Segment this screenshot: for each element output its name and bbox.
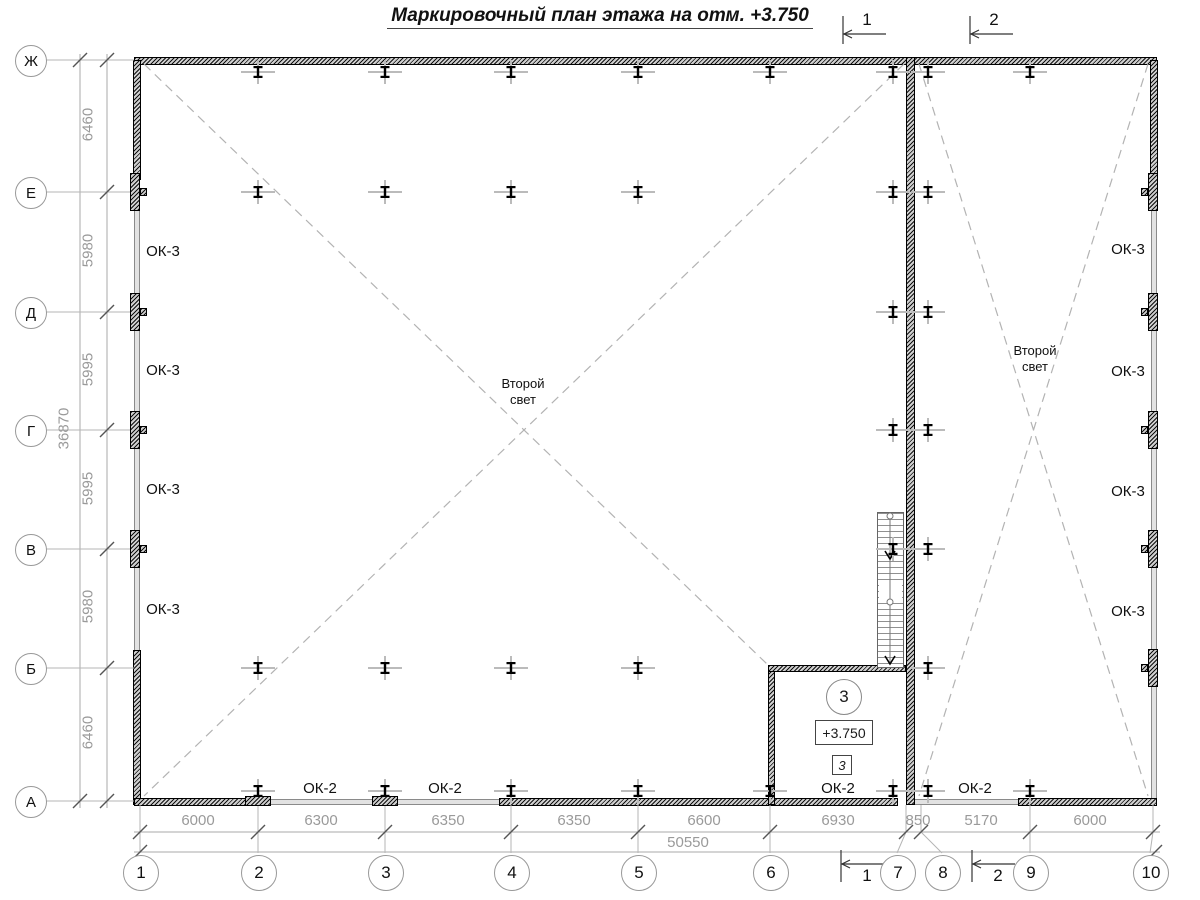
window-label-9: ОК-2: [410, 780, 480, 797]
axis-bubble-col-7: 7: [880, 855, 916, 891]
window-label-10: ОК-2: [803, 780, 873, 797]
section-mark-top-2-label: 2: [982, 10, 1006, 30]
wall-pad-left-tab-430: [140, 426, 147, 434]
room-number-bubble: 3: [826, 679, 862, 715]
wall-pad-left-192: [130, 173, 140, 211]
wall-pad-right-549: [1148, 530, 1158, 568]
axis-bubble-col-9: 9: [1013, 855, 1049, 891]
axis-bubble-col-8: 8: [925, 855, 961, 891]
wall-pad-right-312: [1148, 293, 1158, 331]
wall-pad-right-tab-549: [1141, 545, 1148, 553]
section-mark-top-1-label: 1: [855, 10, 879, 30]
wall-pad-left-312: [130, 293, 140, 331]
wall-pad-right-tab-430: [1141, 426, 1148, 434]
axis-bubble-col-4: 4: [494, 855, 530, 891]
wall-pad-right-668: [1148, 649, 1158, 687]
section-mark-bottom-2-label: 2: [986, 866, 1010, 886]
axis-bubble-col-5: 5: [621, 855, 657, 891]
wall-pad-left-tab-192: [140, 188, 147, 196]
wall-pad-left-tab-312: [140, 308, 147, 316]
wall-pad-left-430: [130, 411, 140, 449]
dim-left-bay-0: 6460: [80, 85, 97, 165]
generated-labels: ЖЕДГВБА123456789106460598059955995598064…: [0, 0, 1200, 900]
dim-bottom-bay-4: 6600: [664, 812, 744, 829]
window-label-7: ОК-3: [1093, 603, 1163, 620]
axis-bubble-row-В: В: [15, 534, 47, 566]
dim-left-bay-4: 5980: [80, 567, 97, 647]
wall-pad-right-tab-668: [1141, 664, 1148, 672]
wall-pad-bottom-385: [372, 796, 398, 806]
axis-bubble-row-Ж: Ж: [15, 45, 47, 77]
window-label-2: ОК-3: [128, 481, 198, 498]
elevation-mark: +3.750: [815, 720, 873, 745]
window-label-0: ОК-3: [128, 243, 198, 260]
dim-left-bay-5: 6460: [80, 693, 97, 773]
window-label-6: ОК-3: [1093, 483, 1163, 500]
axis-bubble-row-Е: Е: [15, 177, 47, 209]
section-mark-bottom-1-label: 1: [855, 866, 879, 886]
axis-bubble-row-Д: Д: [15, 297, 47, 329]
window-label-11: ОК-2: [940, 780, 1010, 797]
second-light-label-0: Второй свет: [473, 376, 573, 409]
wall-pad-right-430: [1148, 411, 1158, 449]
dim-bottom-bay-2: 6350: [408, 812, 488, 829]
window-label-5: ОК-3: [1093, 363, 1163, 380]
dim-bottom-bay-5: 6930: [798, 812, 878, 829]
door-mark: 3: [832, 755, 852, 775]
axis-bubble-row-Б: Б: [15, 653, 47, 685]
dim-bottom-total: 50550: [643, 834, 733, 851]
wall-pad-right-tab-312: [1141, 308, 1148, 316]
axis-bubble-col-6: 6: [753, 855, 789, 891]
axis-bubble-col-2: 2: [241, 855, 277, 891]
window-label-1: ОК-3: [128, 362, 198, 379]
wall-pad-right-192: [1148, 173, 1158, 211]
axis-bubble-row-Г: Г: [15, 415, 47, 447]
dim-left-bay-3: 5995: [80, 449, 97, 529]
dim-bottom-bay-7: 5170: [941, 812, 1021, 829]
dim-left-bay-2: 5995: [80, 330, 97, 410]
second-light-label-1: Второй свет: [985, 343, 1085, 376]
wall-pad-left-tab-549: [140, 545, 147, 553]
wall-pad-bottom-258: [245, 796, 271, 806]
window-label-3: ОК-3: [128, 601, 198, 618]
axis-bubble-col-10: 10: [1133, 855, 1169, 891]
dim-bottom-bay-8: 6000: [1050, 812, 1130, 829]
window-label-4: ОК-3: [1093, 241, 1163, 258]
axis-bubble-col-1: 1: [123, 855, 159, 891]
wall-pad-right-tab-192: [1141, 188, 1148, 196]
window-label-8: ОК-2: [285, 780, 355, 797]
axis-bubble-col-3: 3: [368, 855, 404, 891]
axis-bubble-row-А: А: [15, 786, 47, 818]
wall-pad-left-549: [130, 530, 140, 568]
dim-bottom-bay-3: 6350: [534, 812, 614, 829]
dim-left-total: 36870: [56, 389, 73, 469]
dim-bottom-bay-0: 6000: [158, 812, 238, 829]
dim-bottom-bay-1: 6300: [281, 812, 361, 829]
dim-left-bay-1: 5980: [80, 211, 97, 291]
